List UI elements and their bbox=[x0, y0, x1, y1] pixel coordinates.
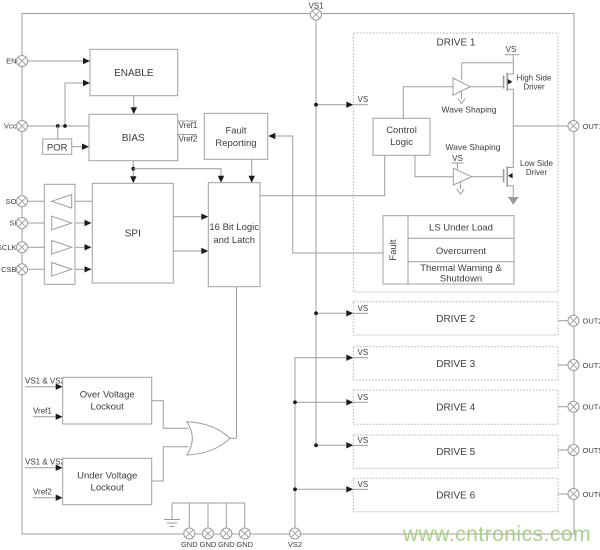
drive5-section: DRIVE 5 VS bbox=[353, 435, 558, 468]
drive6-section: DRIVE 6 VS bbox=[353, 478, 558, 511]
fault-row-overcurrent: Overcurrent bbox=[436, 246, 487, 257]
fault-row-ls-under-load: LS Under Load bbox=[429, 223, 493, 234]
enable-label: ENABLE bbox=[114, 68, 154, 79]
drive2-section: DRIVE 2 VS bbox=[353, 302, 558, 335]
hs-mosfet-arrow-icon bbox=[508, 79, 513, 85]
pin-out6: OUT6 bbox=[568, 489, 600, 500]
out4-pin-label: OUT4 bbox=[583, 403, 600, 412]
out3-pin-label: OUT3 bbox=[583, 361, 600, 370]
drive3-section: DRIVE 3 VS bbox=[353, 347, 558, 380]
pin-out1: OUT1 bbox=[568, 121, 600, 132]
control-logic-label-2: Logic bbox=[390, 137, 413, 148]
low-side-driver-label-1: Low Side bbox=[520, 159, 553, 168]
out5-pin-label: OUT5 bbox=[583, 446, 600, 455]
drive6-title: DRIVE 6 bbox=[436, 490, 475, 501]
uvl-label-2: Lockout bbox=[91, 482, 125, 493]
wave-shaping-low-buffer-icon bbox=[453, 168, 471, 185]
vs2-pin-label: VS2 bbox=[288, 540, 302, 549]
uvl-label-1: Under Voltage bbox=[77, 470, 137, 481]
si-pin-label: SI bbox=[9, 219, 16, 228]
watermark: www.cntronics.com bbox=[402, 523, 591, 546]
fault-reporting-label-1: Fault bbox=[225, 125, 246, 136]
vs2-rail bbox=[293, 355, 353, 529]
sclk-pin-label: SCLK bbox=[0, 243, 17, 252]
drive4-title: DRIVE 4 bbox=[436, 403, 475, 414]
uvl-input-label-1: VS1 & VS2 bbox=[25, 458, 66, 467]
drive5-title: DRIVE 5 bbox=[436, 447, 475, 458]
pin-sclk: SCLK bbox=[0, 242, 28, 253]
drive4-vs-label: VS bbox=[358, 393, 369, 402]
vref2-out-label: Vref2 bbox=[179, 135, 198, 144]
pin-gnd-4: GND bbox=[236, 528, 253, 549]
low-side-driver-label-2: Driver bbox=[526, 168, 548, 177]
lockout-section: VS1 & VS2 Vref1 VS1 & VS2 Vref2 Over Vol… bbox=[25, 377, 237, 505]
vcc-pin-label: Vcc bbox=[4, 122, 17, 131]
drive1-title: DRIVE 1 bbox=[437, 38, 476, 49]
pin-gnd-3: GND bbox=[218, 528, 235, 549]
pin-out2: OUT2 bbox=[568, 315, 600, 326]
pin-gnd-2: GND bbox=[200, 528, 217, 549]
por-label: POR bbox=[47, 142, 68, 153]
pin-en: EN bbox=[6, 56, 27, 67]
out1-pin-label: OUT1 bbox=[583, 122, 600, 131]
wave-shaping-low-label: Wave Shaping bbox=[446, 142, 501, 152]
drive6-vs-label: VS bbox=[358, 480, 369, 489]
fault-row-thermal-1: Thermal Warning & bbox=[420, 263, 502, 274]
drive3-title: DRIVE 3 bbox=[436, 359, 475, 370]
pin-csb: CSB bbox=[1, 264, 27, 275]
pin-vcc: Vcc bbox=[4, 121, 28, 132]
drive4-section: DRIVE 4 VS bbox=[353, 390, 558, 424]
or-gate-icon bbox=[187, 422, 230, 455]
drive1-section: DRIVE 1 VS Control Logic VS Wave Shaping… bbox=[353, 33, 558, 292]
pin-si: SI bbox=[9, 218, 27, 229]
drive1-vs-in-label: VS bbox=[358, 95, 369, 104]
drive5-vs-label: VS bbox=[358, 436, 369, 445]
ground-section bbox=[164, 503, 245, 528]
fault-column-label: Fault bbox=[388, 239, 399, 260]
gnd-pin-label-4: GND bbox=[236, 540, 253, 549]
high-side-driver-label-1: High Side bbox=[517, 74, 552, 83]
wave-shaping-top-label: Wave Shaping bbox=[442, 105, 497, 115]
pin-gnd-1: GND bbox=[181, 528, 198, 549]
ovl-input-label-2: Vref1 bbox=[33, 407, 52, 416]
gnd-pin-label-1: GND bbox=[181, 540, 198, 549]
pin-vs1: VS1 bbox=[308, 2, 324, 21]
uvl-input-label-2: Vref2 bbox=[33, 488, 52, 497]
ic-block-diagram: ENABLE BIAS POR Vref1 Vref2 Fault Report… bbox=[0, 0, 600, 550]
ovl-input-label-1: VS1 & VS2 bbox=[25, 377, 66, 386]
pin-out4: OUT4 bbox=[568, 401, 600, 412]
vs1-rail bbox=[314, 21, 353, 449]
control-logic-label-1: Control bbox=[386, 125, 417, 136]
ovl-label-1: Over Voltage bbox=[80, 389, 135, 400]
bias-label: BIAS bbox=[122, 133, 145, 144]
logic-latch-label-2: and Latch bbox=[213, 235, 255, 246]
out-wires bbox=[513, 126, 568, 494]
out6-pin-label: OUT6 bbox=[583, 490, 600, 499]
fault-reporting-label-2: Reporting bbox=[215, 138, 256, 149]
drive2-title: DRIVE 2 bbox=[436, 314, 475, 325]
drive1-vs-low-label: VS bbox=[452, 154, 463, 163]
csb-pin-label: CSB bbox=[1, 265, 16, 274]
ls-mosfet-arrow-icon bbox=[508, 173, 513, 179]
high-side-driver-label-2: Driver bbox=[523, 83, 545, 92]
out2-pin-label: OUT2 bbox=[583, 317, 600, 326]
pin-out5: OUT5 bbox=[568, 445, 600, 456]
so-pin-label: SO bbox=[6, 197, 17, 206]
ground-symbol-icon bbox=[164, 503, 180, 527]
pin-out3: OUT3 bbox=[568, 360, 600, 371]
ovl-label-2: Lockout bbox=[91, 401, 125, 412]
logic-latch-label-1: 16 Bit Logic bbox=[209, 222, 259, 233]
drive2-vs-label: VS bbox=[358, 304, 369, 313]
pin-so: SO bbox=[6, 196, 28, 207]
vref1-out-label: Vref1 bbox=[179, 121, 198, 130]
fault-row-thermal-2: Shutdown bbox=[440, 274, 482, 285]
pin-vs2: VS2 bbox=[288, 528, 302, 549]
ground-arrow-icon bbox=[508, 197, 519, 205]
drive3-vs-label: VS bbox=[358, 348, 369, 357]
gnd-pin-label-3: GND bbox=[218, 540, 235, 549]
en-pin-label: EN bbox=[6, 57, 16, 66]
block-diagram-page: ENABLE BIAS POR Vref1 Vref2 Fault Report… bbox=[0, 0, 600, 550]
gnd-pin-label-2: GND bbox=[200, 540, 217, 549]
drive1-vs-top-label: VS bbox=[506, 45, 517, 54]
spi-label: SPI bbox=[125, 229, 141, 240]
